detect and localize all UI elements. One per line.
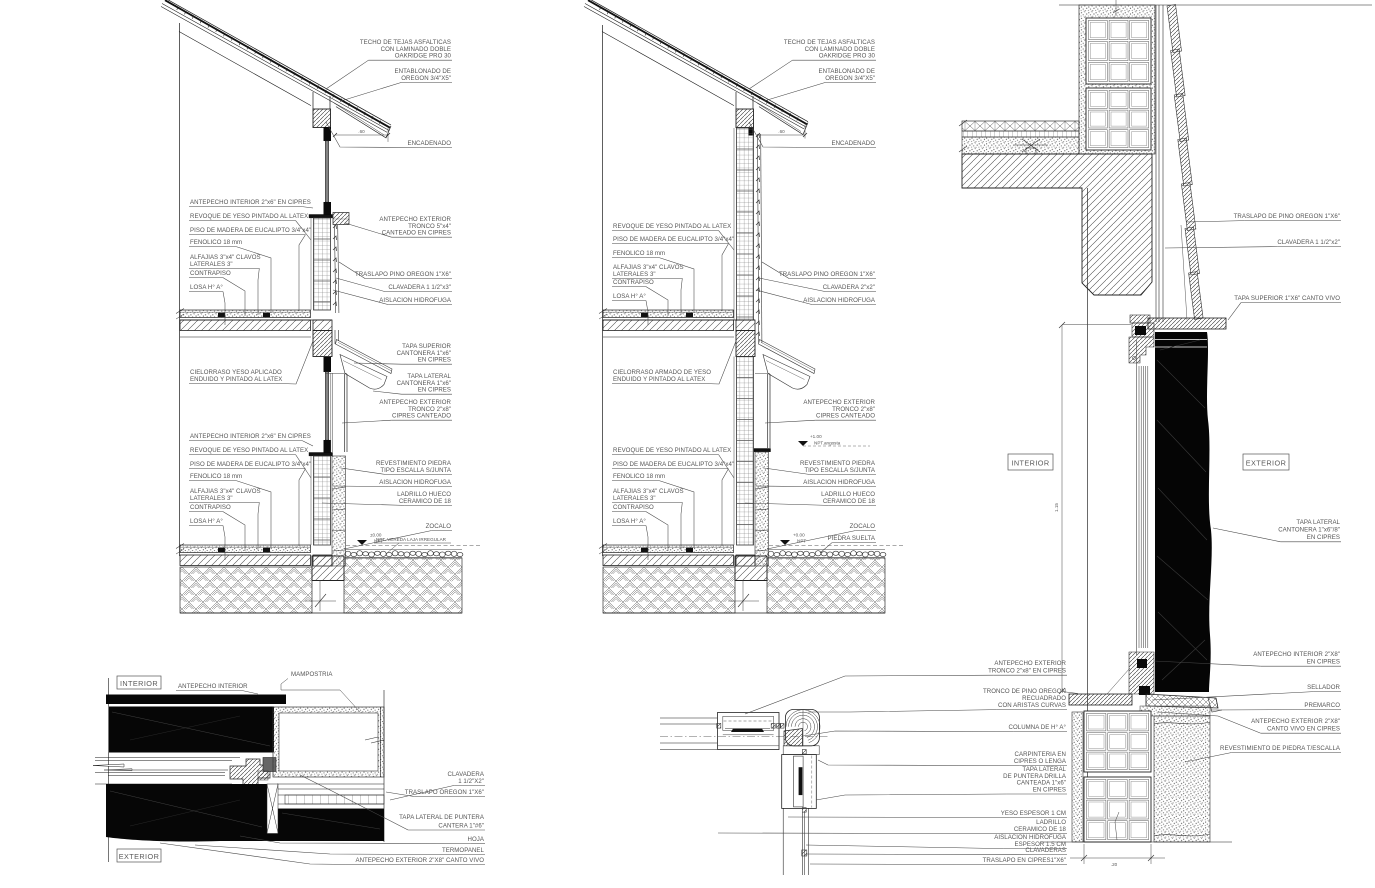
- svg-text:CONTRAPISO: CONTRAPISO: [190, 504, 231, 511]
- svg-text:+1.00: +1.00: [810, 434, 822, 439]
- svg-text:CLAVADERA 2"x2": CLAVADERA 2"x2": [823, 284, 875, 291]
- svg-text:PISO DE MADERA DE EUCALIPTO 3/: PISO DE MADERA DE EUCALIPTO 3/4"x4": [613, 236, 734, 243]
- svg-text:TAPA LATERAL DE PUNTERA: TAPA LATERAL DE PUNTERA: [399, 814, 485, 821]
- svg-text:CIPRES O LENGA: CIPRES O LENGA: [1014, 758, 1067, 765]
- svg-text:YESO ESPESOR 1 CM: YESO ESPESOR 1 CM: [1001, 810, 1066, 817]
- svg-text:LADRILLO: LADRILLO: [1036, 819, 1066, 826]
- svg-text:LATERALES 3": LATERALES 3": [190, 495, 233, 502]
- svg-text:TIPO ESCALLA S/JUNTA: TIPO ESCALLA S/JUNTA: [804, 467, 876, 474]
- svg-text:OAKRIDGE PRO 30: OAKRIDGE PRO 30: [819, 53, 876, 60]
- svg-text:HOJA: HOJA: [468, 836, 485, 843]
- svg-text:EN CIPRES: EN CIPRES: [1307, 534, 1340, 541]
- svg-text:TRASLAPO PINO OREGON 1"X6": TRASLAPO PINO OREGON 1"X6": [355, 271, 451, 278]
- svg-text:CANTEADO EN CIPRES: CANTEADO EN CIPRES: [382, 230, 451, 237]
- svg-text:.20: .20: [1111, 862, 1118, 867]
- svg-text:MAMPOSTRIA: MAMPOSTRIA: [291, 671, 333, 678]
- svg-text:REVOQUE DE YESO PINTADO AL LAT: REVOQUE DE YESO PINTADO AL LATEX: [190, 213, 308, 220]
- svg-text:CONTRAPISO: CONTRAPISO: [613, 504, 654, 511]
- svg-text:AISLACION HIDROFUGA: AISLACION HIDROFUGA: [803, 297, 876, 304]
- svg-text:ENCADENADO: ENCADENADO: [831, 140, 875, 147]
- svg-text:CLAVADERAS: CLAVADERAS: [1025, 847, 1066, 854]
- svg-text:LOSA H° A°: LOSA H° A°: [613, 518, 646, 525]
- svg-text:EXTERIOR: EXTERIOR: [119, 852, 160, 861]
- svg-text:LATERALES 3": LATERALES 3": [613, 495, 656, 502]
- svg-text:COLUMNA DE H° A°: COLUMNA DE H° A°: [1009, 724, 1067, 731]
- svg-text:TRASLAPO PINO OREGON 1"X6": TRASLAPO PINO OREGON 1"X6": [779, 271, 875, 278]
- svg-text:ANTEPECHO INTERIOR 2"x6" EN CI: ANTEPECHO INTERIOR 2"x6" EN CIPRES: [190, 433, 311, 440]
- svg-text:AISLACION HIDROFUGA: AISLACION HIDROFUGA: [379, 297, 452, 304]
- svg-text:+0.00: +0.00: [793, 533, 805, 538]
- svg-text:EXTERIOR: EXTERIOR: [1246, 459, 1287, 468]
- svg-text:REVESTIMIENTO DE PIEDRA T/ESCA: REVESTIMIENTO DE PIEDRA T/ESCALLA: [1220, 745, 1341, 752]
- svg-text:ZOCALO: ZOCALO: [426, 523, 452, 530]
- svg-text:1 1/2"X2": 1 1/2"X2": [458, 778, 484, 785]
- svg-text:EN CIPRES: EN CIPRES: [418, 357, 451, 364]
- svg-text:PISO DE MADERA DE EUCALIPTO 3/: PISO DE MADERA DE EUCALIPTO 3/4"x4": [190, 227, 311, 234]
- svg-text:LOSA H° A°: LOSA H° A°: [190, 284, 223, 291]
- svg-text:CONTRAPISO: CONTRAPISO: [613, 279, 654, 286]
- svg-text:CERAMICO DE 18: CERAMICO DE 18: [399, 498, 452, 505]
- svg-text:FENOLICO 18 mm: FENOLICO 18 mm: [190, 239, 242, 246]
- svg-text:1.15: 1.15: [1054, 503, 1059, 512]
- svg-text:CANTO VIVO EN CIPRES: CANTO VIVO EN CIPRES: [1267, 726, 1340, 733]
- svg-text:TRONCO 2"x8" EN CIPRES: TRONCO 2"x8" EN CIPRES: [988, 668, 1066, 675]
- svg-text:.60: .60: [358, 129, 365, 134]
- svg-text:ANTEPECHO EXTERIOR 2"X8": ANTEPECHO EXTERIOR 2"X8": [1251, 718, 1340, 725]
- svg-text:ENDUIDO Y PINTADO AL LATEX: ENDUIDO Y PINTADO AL LATEX: [190, 376, 282, 383]
- svg-text:CLAVADERA 1 1/2"x2": CLAVADERA 1 1/2"x2": [1277, 239, 1340, 246]
- svg-text:RECUADRADO: RECUADRADO: [1022, 695, 1066, 702]
- svg-text:FENOLICO 18 mm: FENOLICO 18 mm: [613, 473, 665, 480]
- svg-text:TAPA SUPERIOR 1"X6" CANTO VIVO: TAPA SUPERIOR 1"X6" CANTO VIVO: [1234, 295, 1340, 302]
- svg-text:OREGON 3/4"X5": OREGON 3/4"X5": [825, 75, 875, 82]
- svg-text:.60: .60: [778, 129, 785, 134]
- svg-text:CERAMICO DE 18: CERAMICO DE 18: [1014, 826, 1067, 833]
- svg-text:ENCADENADO: ENCADENADO: [407, 140, 451, 147]
- svg-text:CANTERA 1"#6": CANTERA 1"#6": [438, 822, 484, 829]
- svg-text:ANTEPECHO INTERIOR: ANTEPECHO INTERIOR: [178, 683, 248, 690]
- svg-text:ZOCALO: ZOCALO: [850, 523, 876, 530]
- svg-text:CONTRAPISO: CONTRAPISO: [190, 270, 231, 277]
- svg-text:CERAMICO DE 18: CERAMICO DE 18: [823, 498, 876, 505]
- svg-text:AISLACION HIDROFUGA: AISLACION HIDROFUGA: [803, 479, 876, 486]
- svg-text:REVOQUE DE YESO PINTADO AL LAT: REVOQUE DE YESO PINTADO AL LATEX: [190, 447, 308, 454]
- svg-text:TIPO ESCALLA S/JUNTA: TIPO ESCALLA S/JUNTA: [380, 467, 452, 474]
- svg-text:EN CIPRES: EN CIPRES: [418, 387, 451, 394]
- svg-text:CON ARISTAS CURVAS: CON ARISTAS CURVAS: [998, 702, 1066, 709]
- svg-text:NPT.angosta: NPT.angosta: [814, 441, 841, 446]
- svg-text:TRASLAPO OREGON 1"X6": TRASLAPO OREGON 1"X6": [405, 789, 484, 796]
- svg-text:FENOLICO 18 mm: FENOLICO 18 mm: [613, 250, 665, 257]
- svg-text:CARPINTERIA EN: CARPINTERIA EN: [1015, 751, 1067, 758]
- svg-text:EN CIPRES: EN CIPRES: [1033, 786, 1066, 793]
- svg-text:REVOQUE DE YESO PINTADO AL LAT: REVOQUE DE YESO PINTADO AL LATEX: [613, 447, 731, 454]
- svg-text:OAKRIDGE PRO 30: OAKRIDGE PRO 30: [395, 53, 452, 60]
- svg-text:AISLACION HIDROFUGA: AISLACION HIDROFUGA: [379, 479, 452, 486]
- svg-text:CANTONERA 1"x6"/8": CANTONERA 1"x6"/8": [1278, 527, 1340, 534]
- svg-text:REVOQUE DE YESO PINTADO AL LAT: REVOQUE DE YESO PINTADO AL LATEX: [613, 223, 731, 230]
- svg-text:TERMOPANEL: TERMOPANEL: [442, 847, 485, 854]
- svg-text:ENDUIDO Y PINTADO AL LATEX: ENDUIDO Y PINTADO AL LATEX: [613, 376, 705, 383]
- svg-text:PREMARCO: PREMARCO: [1304, 702, 1340, 709]
- svg-text:LOSA H° A°: LOSA H° A°: [613, 293, 646, 300]
- svg-text:OREGON 3/4"X5": OREGON 3/4"X5": [401, 75, 451, 82]
- svg-text:INTERIOR: INTERIOR: [120, 679, 158, 688]
- svg-text:LATERALES 3": LATERALES 3": [190, 261, 233, 268]
- svg-text:PIEDRA SUELTA: PIEDRA SUELTA: [828, 535, 876, 542]
- svg-text:ANTEPECHO INTERIOR 2"x6" EN CI: ANTEPECHO INTERIOR 2"x6" EN CIPRES: [190, 199, 311, 206]
- svg-text:TRONCO DE PINO OREGON: TRONCO DE PINO OREGON: [983, 688, 1066, 695]
- svg-text:ANTEPECHO EXTERIOR: ANTEPECHO EXTERIOR: [994, 660, 1066, 667]
- svg-text:TRASLAPO DE PINO OREGON 1"X6": TRASLAPO DE PINO OREGON 1"X6": [1234, 213, 1340, 220]
- svg-text:SELLADOR: SELLADOR: [1307, 684, 1340, 691]
- svg-text:PISO DE MADERA DE EUCALIPTO 3/: PISO DE MADERA DE EUCALIPTO 3/4"x4": [613, 461, 734, 468]
- svg-text:INTERIOR: INTERIOR: [1011, 459, 1049, 468]
- svg-text:LATERALES 3": LATERALES 3": [613, 271, 656, 278]
- svg-text:FENOLICO 18 mm: FENOLICO 18 mm: [190, 473, 242, 480]
- svg-text:LOSA H° A°: LOSA H° A°: [190, 518, 223, 525]
- svg-text:EN CIPRES: EN CIPRES: [1307, 659, 1340, 666]
- svg-text:CIPRES CANTEADO: CIPRES CANTEADO: [816, 413, 875, 420]
- svg-text:NPT. VEREDA LAJA IRREGULAR: NPT. VEREDA LAJA IRREGULAR: [376, 537, 447, 542]
- svg-text:CLAVADERA 1 1/2"x3": CLAVADERA 1 1/2"x3": [388, 284, 451, 291]
- svg-text:TAPA LATERAL: TAPA LATERAL: [1296, 519, 1340, 526]
- svg-text:AISLACION HIDROFUGA: AISLACION HIDROFUGA: [994, 834, 1067, 841]
- svg-text:ANTEPECHO INTERIOR 2"X8": ANTEPECHO INTERIOR 2"X8": [1253, 651, 1340, 658]
- svg-text:CIPRES CANTEADO: CIPRES CANTEADO: [392, 413, 451, 420]
- svg-text:TRASLAPO EN CIPRES1"X6": TRASLAPO EN CIPRES1"X6": [983, 857, 1066, 864]
- svg-text:ANTEPECHO EXTERIOR 2"X8" CANTO: ANTEPECHO EXTERIOR 2"X8" CANTO VIVO: [355, 857, 484, 864]
- svg-text:PISO DE MADERA DE EUCALIPTO 3/: PISO DE MADERA DE EUCALIPTO 3/4"x4": [190, 461, 311, 468]
